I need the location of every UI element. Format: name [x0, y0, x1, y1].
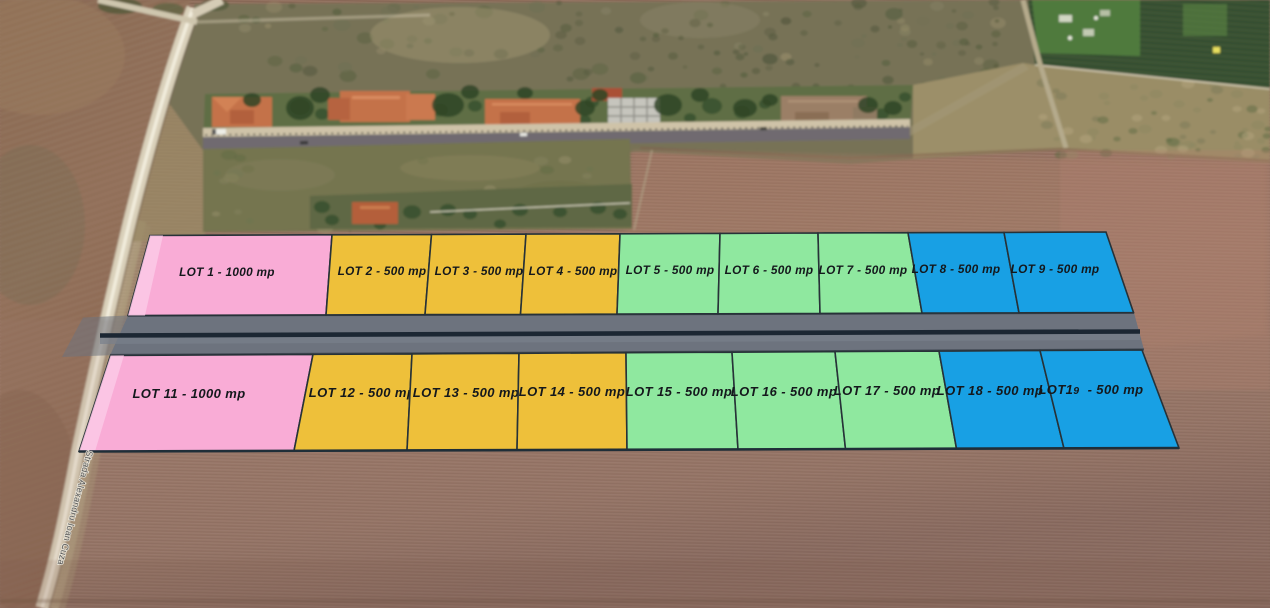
svg-text:LOT 1 - 1000 mp: LOT 1 - 1000 mp [179, 265, 275, 279]
svg-text:LOT 3 - 500 mp: LOT 3 - 500 mp [435, 264, 524, 278]
svg-text:LOT 16 - 500 mp: LOT 16 - 500 mp [731, 384, 837, 399]
svg-text:LOT 4 - 500 mp: LOT 4 - 500 mp [529, 264, 618, 278]
svg-text:LOT 14 - 500 mp: LOT 14 - 500 mp [519, 384, 625, 399]
svg-text:LOT 2 - 500 mp: LOT 2 - 500 mp [338, 264, 427, 278]
svg-text:LOT 17 - 500 mp: LOT 17 - 500 mp [834, 383, 940, 398]
svg-text:LOT 13 - 500 mp: LOT 13 - 500 mp [413, 385, 519, 400]
svg-text:LOT 11 - 1000 mp: LOT 11 - 1000 mp [132, 386, 245, 401]
svg-text:LOT 6 - 500 mp: LOT 6 - 500 mp [725, 263, 814, 277]
svg-text:LOT 15 - 500 mp: LOT 15 - 500 mp [626, 384, 732, 399]
svg-text:LOT19 - 500 mp: LOT19 - 500 mp [1038, 382, 1143, 397]
svg-text:LOT 18 - 500 mp: LOT 18 - 500 mp [937, 383, 1043, 398]
svg-text:LOT 7 - 500 mp: LOT 7 - 500 mp [819, 263, 908, 277]
svg-text:LOT 9 - 500 mp: LOT 9 - 500 mp [1011, 262, 1100, 276]
svg-text:LOT 12 - 500 mp: LOT 12 - 500 mp [309, 385, 415, 400]
svg-text:LOT 5 - 500 mp: LOT 5 - 500 mp [626, 263, 715, 277]
svg-text:LOT 8 - 500 mp: LOT 8 - 500 mp [912, 262, 1001, 276]
